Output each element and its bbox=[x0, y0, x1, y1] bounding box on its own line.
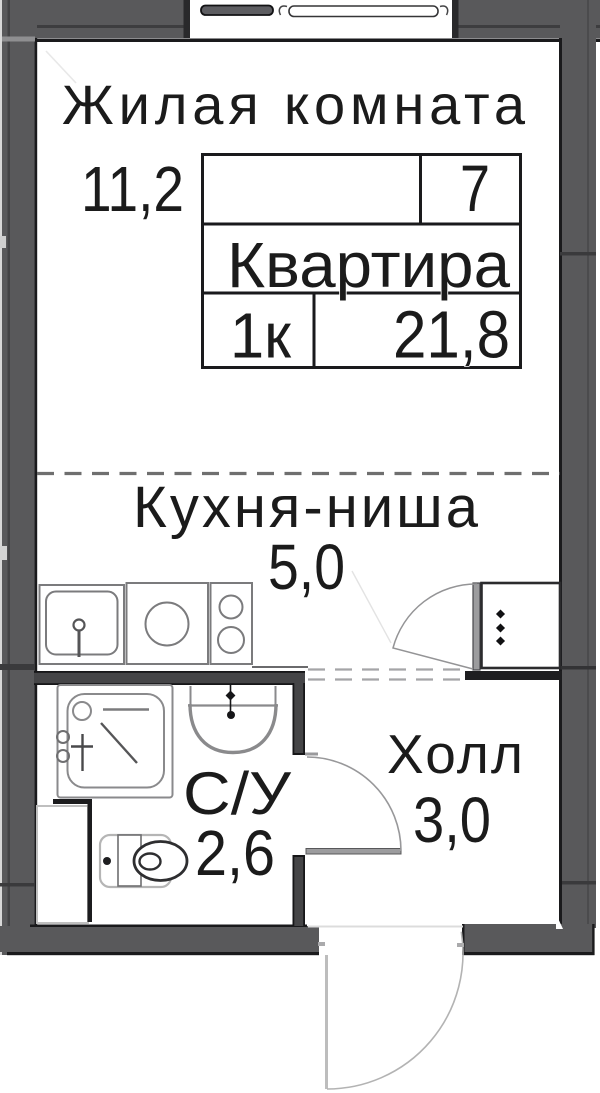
svg-text:Квартира: Квартира bbox=[227, 229, 510, 301]
svg-text:2,6: 2,6 bbox=[195, 817, 275, 889]
svg-text:21,8: 21,8 bbox=[393, 298, 510, 373]
svg-text:3,0: 3,0 bbox=[413, 784, 491, 856]
svg-text:7: 7 bbox=[460, 151, 490, 225]
svg-text:11,2: 11,2 bbox=[81, 153, 184, 225]
svg-text:1к: 1к bbox=[230, 300, 292, 372]
svg-text:5,0: 5,0 bbox=[268, 531, 345, 603]
svg-text:Жилая комната: Жилая комната bbox=[62, 73, 526, 136]
